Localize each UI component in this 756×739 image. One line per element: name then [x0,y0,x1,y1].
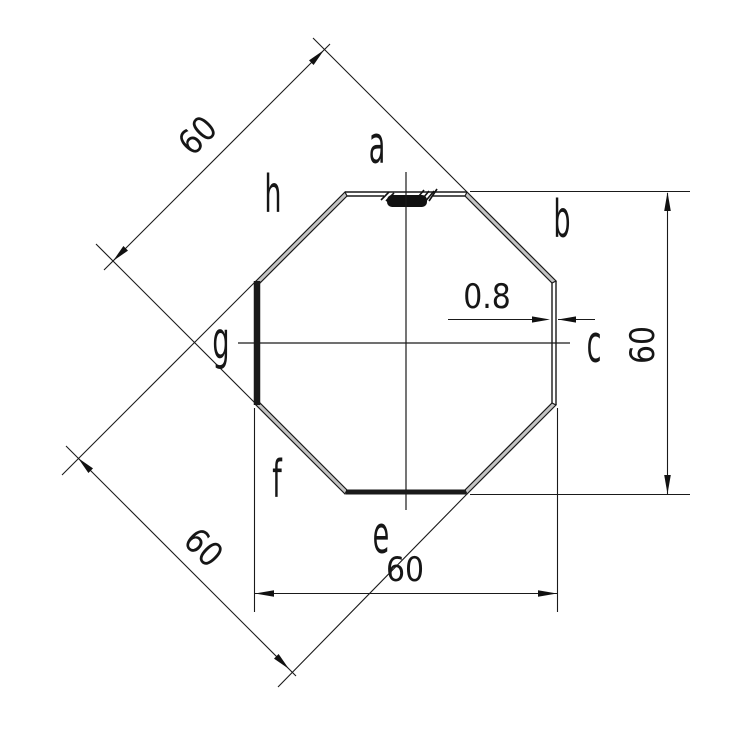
arrow-height-bottom [664,475,671,494]
extension-side-b [313,38,467,192]
drawing-canvas: a b c e f g h 0.8 60 60 60 60 [0,0,756,739]
wall-upper-right-b [465,192,556,283]
side-label-a: a [369,120,386,172]
arrow-wall-left [532,316,550,322]
octagon-profile-geometry [0,0,756,739]
wall-lower-right-d [465,403,556,494]
side-label-f: f [272,454,282,506]
extension-side-f [96,244,257,405]
side-label-c: c [587,319,602,371]
side-label-b: b [553,194,570,246]
dim-line-diagonal-upper [104,44,330,270]
dim-width-label: 60 [386,553,424,587]
wall-thickness-label: 0.8 [463,280,511,314]
dimension-lines [66,44,668,676]
arrow-width-right [538,590,557,597]
arrow-height-top [664,192,671,211]
side-label-g: g [212,315,229,367]
dim-height-label: 60 [626,326,660,364]
arrow-wall-right [558,316,576,322]
arrow-width-left [255,590,274,597]
dim-line-diagonal-lower [66,446,296,676]
wall-lower-left-f [256,403,347,494]
side-label-h: h [264,169,281,221]
